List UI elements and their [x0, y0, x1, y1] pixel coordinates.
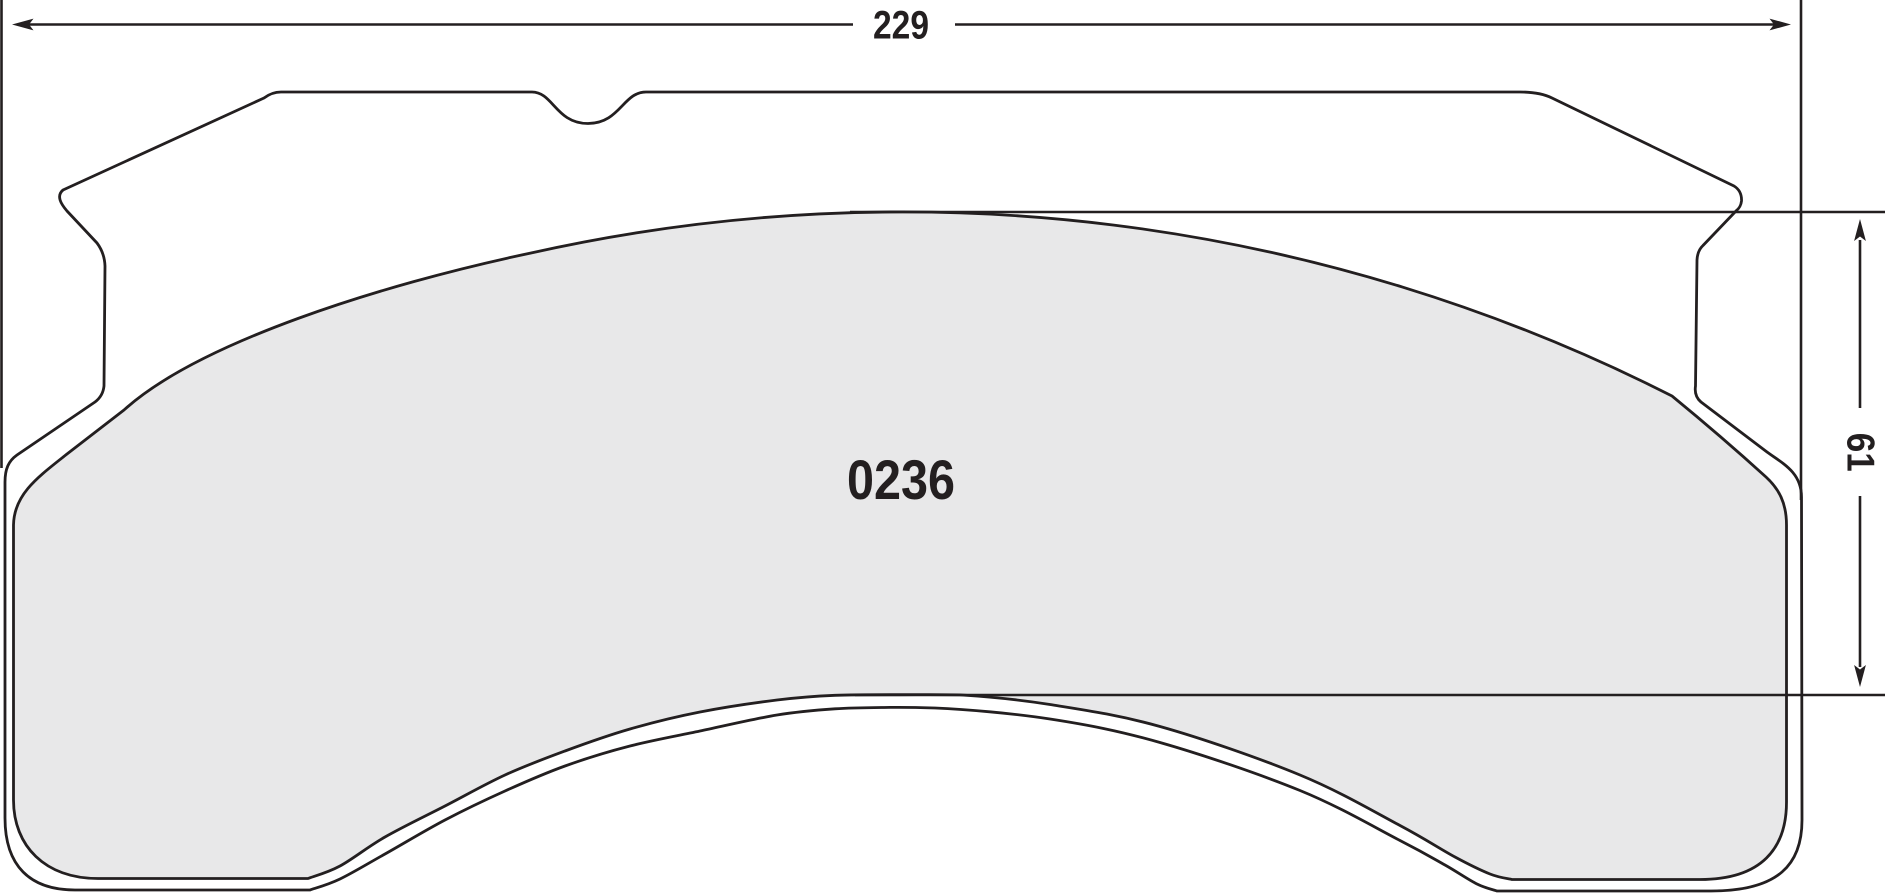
svg-text:61: 61: [1839, 433, 1882, 472]
svg-text:229: 229: [873, 4, 929, 48]
svg-text:0236: 0236: [847, 448, 955, 511]
